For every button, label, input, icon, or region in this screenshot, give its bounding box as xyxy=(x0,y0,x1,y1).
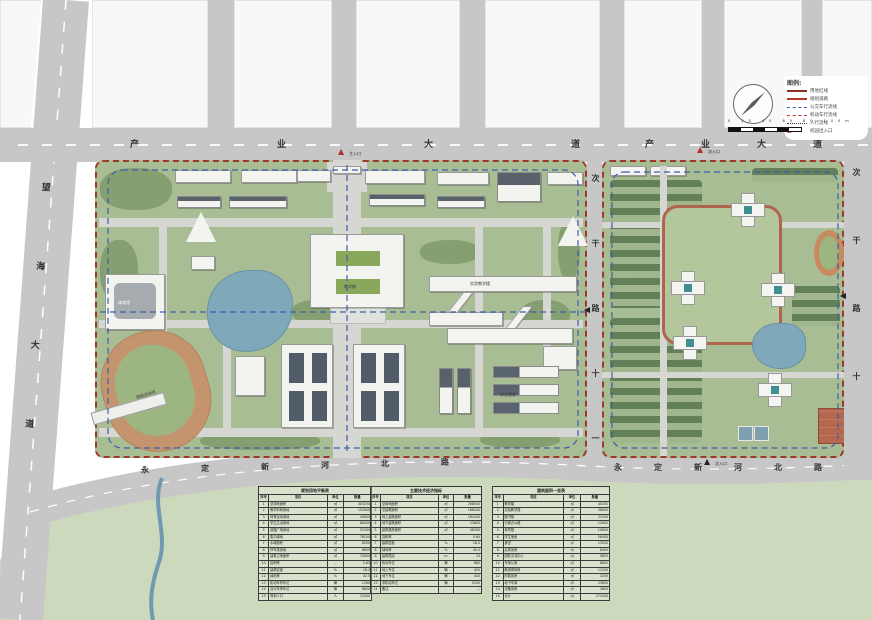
gate-building xyxy=(333,166,361,174)
building-label: 实验教学楼 xyxy=(470,281,490,287)
table-cell: 48300 xyxy=(454,527,482,534)
table-cell: 水域面积 xyxy=(269,541,328,548)
table-cell: 7 xyxy=(259,541,269,548)
table-cell: 15 xyxy=(259,593,269,600)
table-cell: ㎡ xyxy=(564,587,580,594)
table-cell: 学生生活用地 xyxy=(269,521,328,528)
table-cell: 专家公寓 xyxy=(503,560,564,567)
compass-icon xyxy=(733,84,773,124)
table-row: 8停车场用地㎡6800 xyxy=(259,547,372,554)
table-body: 1总用地面积㎡4032002教学科研用地㎡1526003体育运动用地㎡45800… xyxy=(259,501,372,600)
campus-road xyxy=(99,218,583,227)
master-plan-canvas: 产业大道 产业大道 望海大道 永定新河北路 永定新河北路 教学楼 xyxy=(0,0,872,620)
table-cell: 72600 xyxy=(343,554,371,561)
table-header-cell: 单位 xyxy=(564,495,580,502)
table-cell: 11200 xyxy=(580,567,609,574)
table-cell: 14 xyxy=(371,587,381,594)
building xyxy=(437,196,485,208)
table-cell: ㎡ xyxy=(327,521,343,528)
table-cell: 3600 xyxy=(580,587,609,594)
table-cell: - xyxy=(438,534,454,541)
tree-cluster xyxy=(420,240,480,264)
table-cell: 13200 xyxy=(580,541,609,548)
lab-building xyxy=(429,276,577,292)
table-cell: — xyxy=(454,587,482,594)
building xyxy=(610,166,646,176)
table-row: 10机动车位辆860 xyxy=(371,560,482,567)
table-row: 10专家公寓㎡8600 xyxy=(493,560,610,567)
table-row: 3体育运动用地㎡45800 xyxy=(259,514,372,521)
table-header-cell: 数量 xyxy=(343,495,371,502)
table-row: 5道路广场用地㎡52300 xyxy=(259,527,372,534)
table-cell: 7 xyxy=(493,541,504,548)
table-cell: ㎡ xyxy=(438,514,454,521)
building xyxy=(547,172,583,185)
table-title: 规划用地平衡表 xyxy=(258,486,372,494)
table-header-cell: 数量 xyxy=(454,495,482,502)
table-cell: 2 xyxy=(259,508,269,515)
table-cell: ㎡ xyxy=(564,541,580,548)
table-row: 2总建筑面积㎡186200 xyxy=(371,508,482,515)
table-cell: 268500 xyxy=(454,501,482,508)
table-cell: 学生宿舍 xyxy=(503,534,564,541)
table-cell: 13 xyxy=(493,580,504,587)
table-cell: 容积率 xyxy=(269,560,328,567)
table-cell: 8000 xyxy=(343,541,371,548)
table-row: 6容积率-0.60 xyxy=(371,534,482,541)
table-cell: 体育馆 xyxy=(503,527,564,534)
table-cell: ㎡ xyxy=(438,527,454,534)
cross-tower xyxy=(761,273,795,307)
tree-cluster xyxy=(100,168,172,210)
table-cell: 建筑基底面积 xyxy=(380,527,438,534)
table-cell: 14 xyxy=(493,587,504,594)
table-cell: 辆 xyxy=(438,567,454,574)
table-cell: 总建筑面积 xyxy=(380,508,438,515)
table-cell: 建筑限高 xyxy=(380,554,438,561)
table-cell: 10 xyxy=(371,560,381,567)
building-area-table: 建筑面积一览表 序号项目单位数量1教学楼㎡452002实验教学楼㎡386003图… xyxy=(492,486,610,601)
table-cell: 辆 xyxy=(438,574,454,581)
table-header-cell: 项目 xyxy=(269,495,328,502)
table-cell: ㎡ xyxy=(564,574,580,581)
table-row: 8绿地率%40.0 xyxy=(371,547,482,554)
table-row: 11地上车位辆420 xyxy=(371,567,482,574)
table-cell: 12000 xyxy=(343,593,371,600)
table-cell: 地下车位 xyxy=(380,574,438,581)
secondary-entrance-marker: ▲ xyxy=(697,146,703,154)
table-row: 11建筑密度%18.0 xyxy=(259,567,372,574)
table-cell: 1260 xyxy=(343,580,371,587)
table-cell: 12 xyxy=(259,574,269,581)
table-cell: 后勤用房 xyxy=(503,547,564,554)
table-cell: 建筑密度 xyxy=(269,567,328,574)
table-cell: 24 xyxy=(454,554,482,561)
legend-item: 机动车行流线 xyxy=(787,111,865,119)
table-title: 建筑面积一览表 xyxy=(492,486,610,494)
table-cell: 12 xyxy=(493,574,504,581)
table-cell: 9800 xyxy=(580,554,609,561)
table-cell: 5 xyxy=(371,527,381,534)
table-cell: ㎡ xyxy=(564,567,580,574)
table-cell: 5 xyxy=(259,527,269,534)
table-row: 9国际交流中心㎡9800 xyxy=(493,554,610,561)
table-cell: 地下建筑面积 xyxy=(380,521,438,528)
table-cell: ㎡ xyxy=(327,534,343,541)
table-cell: 行政办公楼 xyxy=(503,521,564,528)
table-cell: % xyxy=(438,547,454,554)
table-cell: 5 xyxy=(493,527,504,534)
table-row: 13非机动车位辆5200 xyxy=(371,580,482,587)
table-row: 12绿地率%42.5 xyxy=(259,574,372,581)
table-cell: 6800 xyxy=(343,547,371,554)
table-header-cell: 项目 xyxy=(380,495,438,502)
table-cell: 21500 xyxy=(580,514,609,521)
table-cell: 总用地面积 xyxy=(269,501,328,508)
table-cell: ㎡ xyxy=(327,514,343,521)
table-cell: 8 xyxy=(259,547,269,554)
lab-building xyxy=(429,312,503,326)
table-cell: 440 xyxy=(454,574,482,581)
building xyxy=(365,170,425,184)
table-cell: ㎡ xyxy=(564,547,580,554)
table-row: 7建筑密度%18.0 xyxy=(371,541,482,548)
table-row: 15合计㎡271000 xyxy=(493,593,610,600)
courtyard-garden xyxy=(336,251,380,266)
table-cell: ㎡ xyxy=(327,527,343,534)
table-cell: 规划人口 xyxy=(269,593,328,600)
table-cell: 403200 xyxy=(343,501,371,508)
legend-item: 公交车行流线 xyxy=(787,103,865,111)
table-cell: 420 xyxy=(454,567,482,574)
table-cell: ㎡ xyxy=(327,501,343,508)
bus-route-sample xyxy=(787,107,807,108)
table-cell: 14 xyxy=(259,587,269,594)
table-cell: 2 xyxy=(371,508,381,515)
building xyxy=(177,196,221,208)
table-cell: 11 xyxy=(371,567,381,574)
table-cell: ㎡ xyxy=(438,501,454,508)
table-cell: 9 xyxy=(493,554,504,561)
table-cell: 3 xyxy=(493,514,504,521)
table-cell: ㎡ xyxy=(327,554,343,561)
table-cell: 0.82 xyxy=(343,560,371,567)
table-row: 5体育馆㎡15800 xyxy=(493,527,610,534)
table-cell: 地上车位 xyxy=(380,567,438,574)
table-cell: 52300 xyxy=(343,527,371,534)
table-row: 9建筑限高m24 xyxy=(371,554,482,561)
table-row: 14自行车停车位辆8600 xyxy=(259,587,372,594)
cross-tower xyxy=(758,373,792,407)
table-row: 14设备用房㎡3600 xyxy=(493,587,610,594)
legend-title: 图例: xyxy=(787,78,865,87)
table-row: 1总用地面积㎡268500 xyxy=(371,501,482,508)
table-cell: 人 xyxy=(327,593,343,600)
table-row: 15规划人口人12000 xyxy=(259,593,372,600)
table-body: 1总用地面积㎡2685002总建筑面积㎡1862003地上建筑面积㎡162400… xyxy=(371,501,482,593)
table-cell: ㎡ xyxy=(327,508,343,515)
table-cell: 自行车停车位 xyxy=(269,587,328,594)
table-cell: 152600 xyxy=(343,508,371,515)
table-cell: 8 xyxy=(493,547,504,554)
building-label: 教学楼 xyxy=(344,284,356,290)
building xyxy=(650,166,686,176)
table-body: 1教学楼㎡452002实验教学楼㎡386003图书馆㎡215004行政办公楼㎡1… xyxy=(493,501,610,600)
table-cell: 42.5 xyxy=(343,574,371,581)
table-cell: 合计 xyxy=(503,593,564,600)
scale-bar xyxy=(728,127,802,132)
table-row: 10容积率-0.82 xyxy=(259,560,372,567)
building xyxy=(191,256,215,270)
table-cell: ㎡ xyxy=(564,514,580,521)
table-cell: 13 xyxy=(259,580,269,587)
table-cell: - xyxy=(327,560,343,567)
table-cell: 体育运动用地 xyxy=(269,514,328,521)
table-cell: 6 xyxy=(493,534,504,541)
basketball-court xyxy=(754,426,769,441)
tech-indicator-table: 主要技术经济指标 序号项目单位数量1总用地面积㎡2685002总建筑面积㎡186… xyxy=(370,486,482,594)
building xyxy=(175,170,231,183)
table-cell: 集中绿地 xyxy=(269,534,328,541)
table-cell: 45200 xyxy=(580,501,609,508)
table-cell: 机动车停车位 xyxy=(269,580,328,587)
table-row: 2实验教学楼㎡38600 xyxy=(493,508,610,515)
table-cell: 11 xyxy=(493,567,504,574)
table-header-cell: 数量 xyxy=(580,495,609,502)
table-cell: 设备用房 xyxy=(503,587,564,594)
table-cell: 地下车库 xyxy=(503,580,564,587)
table-row: 13地下车库㎡23800 xyxy=(493,580,610,587)
road-label-yongding-right: 永定新河北路 xyxy=(614,462,854,473)
row-buildings xyxy=(752,168,838,182)
table-row: 3地上建筑面积㎡162400 xyxy=(371,514,482,521)
dormitory xyxy=(439,368,453,414)
table-cell: 辆 xyxy=(327,587,343,594)
table-cell: 8 xyxy=(371,547,381,554)
redline-sample xyxy=(787,90,807,92)
table-cell: ㎡ xyxy=(438,508,454,515)
lab-building xyxy=(447,328,573,344)
courtyard-building xyxy=(353,344,405,428)
table-cell: 45800 xyxy=(343,514,371,521)
legend-item: 用地红线 xyxy=(787,87,865,95)
entrance-arrow: ▲ xyxy=(583,307,591,313)
table-cell: 总用地面积 xyxy=(380,501,438,508)
table-cell: 1 xyxy=(259,501,269,508)
table-row: 4地下建筑面积㎡23800 xyxy=(371,521,482,528)
table-cell: 绿地率 xyxy=(269,574,328,581)
table-cell: 162400 xyxy=(454,514,482,521)
table-cell: 教师周转房 xyxy=(503,567,564,574)
table-row: 6学生宿舍㎡56400 xyxy=(493,534,610,541)
table-cell: 6 xyxy=(259,534,269,541)
dormitory xyxy=(493,366,559,378)
gymnasium xyxy=(105,274,165,330)
table-cell: 18.0 xyxy=(454,541,482,548)
table-cell: 建筑密度 xyxy=(380,541,438,548)
table-cell: 3 xyxy=(259,514,269,521)
table-cell: 地上建筑面积 xyxy=(380,514,438,521)
table-cell: 辆 xyxy=(438,560,454,567)
road-label-secondary-mid: 次干路十一 xyxy=(590,174,601,499)
cross-tower xyxy=(731,193,765,227)
table-header-cell: 项目 xyxy=(503,495,564,502)
table-cell: 备注 xyxy=(380,587,438,594)
table-cell: 40.0 xyxy=(454,547,482,554)
entrance-label: 次入口 xyxy=(708,149,720,155)
table-header-cell: 序号 xyxy=(493,495,504,502)
table-cell: 3 xyxy=(371,514,381,521)
table-row: 2教学科研用地㎡152600 xyxy=(259,508,372,515)
table-cell: 6 xyxy=(371,534,381,541)
table-row: 6集中绿地㎡76100 xyxy=(259,534,372,541)
table-cell: 5200 xyxy=(454,580,482,587)
cross-tower xyxy=(671,271,705,305)
table-row: 8后勤用房㎡6400 xyxy=(493,547,610,554)
table-cell: 4 xyxy=(493,521,504,528)
land-balance-table: 规划用地平衡表 序号项目单位数量1总用地面积㎡4032002教学科研用地㎡152… xyxy=(258,486,372,601)
building-label: 学生宿舍 xyxy=(500,392,516,398)
secondary-entrance-marker: ▲ xyxy=(704,458,710,466)
table-cell: 7 xyxy=(371,541,381,548)
table-cell: ㎡ xyxy=(564,508,580,515)
main-entrance-marker: ▲ xyxy=(338,148,344,156)
building xyxy=(229,196,287,208)
table-row: 7水域面积㎡8000 xyxy=(259,541,372,548)
building xyxy=(369,194,425,206)
table-cell: 8600 xyxy=(343,587,371,594)
table-cell: 道路广场用地 xyxy=(269,527,328,534)
building xyxy=(297,170,331,182)
table-row: 5建筑基底面积㎡48300 xyxy=(371,527,482,534)
building-label: 体育馆 xyxy=(118,300,130,306)
table-cell: ㎡ xyxy=(438,521,454,528)
table-row: 1总用地面积㎡403200 xyxy=(259,501,372,508)
table-cell: ㎡ xyxy=(564,554,580,561)
grand-steps xyxy=(330,308,386,324)
table-cell: 8600 xyxy=(580,560,609,567)
courtyard-garden xyxy=(336,279,380,294)
campus-road xyxy=(602,372,844,378)
table-row: 9建筑占地面积㎡72600 xyxy=(259,554,372,561)
table-cell: 1 xyxy=(371,501,381,508)
row-buildings xyxy=(792,286,840,326)
table-cell: 13 xyxy=(371,580,381,587)
table-cell: 4 xyxy=(259,521,269,528)
table-cell: m xyxy=(438,554,454,561)
table-row: 1教学楼㎡45200 xyxy=(493,501,610,508)
table-header-cell: 序号 xyxy=(371,495,381,502)
building xyxy=(437,172,489,185)
east-lake xyxy=(752,323,806,369)
table-cell: 12600 xyxy=(580,521,609,528)
road-label-secondary-east: 次干路十 xyxy=(851,168,862,440)
small-running-track xyxy=(814,230,844,276)
table-cell: 56400 xyxy=(580,534,609,541)
table-cell: 1 xyxy=(493,501,504,508)
table-cell: 4 xyxy=(371,521,381,528)
table-cell: 食堂 xyxy=(503,541,564,548)
table-cell: 绿地率 xyxy=(380,547,438,554)
table-cell: 9 xyxy=(259,554,269,561)
table-cell: 机动车位 xyxy=(380,560,438,567)
table-row: 4行政办公楼㎡12600 xyxy=(493,521,610,528)
table-cell: 10 xyxy=(259,560,269,567)
table-row: 4学生生活用地㎡68400 xyxy=(259,521,372,528)
table-header-cell: 单位 xyxy=(438,495,454,502)
table-cell: 38600 xyxy=(580,508,609,515)
table-cell: ㎡ xyxy=(564,593,580,600)
table-cell: 教学楼 xyxy=(503,501,564,508)
vehicle-route-sample xyxy=(787,115,807,116)
table-row: 11教师周转房㎡11200 xyxy=(493,567,610,574)
table-title: 主要技术经济指标 xyxy=(370,486,482,494)
table-row: 12附属用房㎡4200 xyxy=(493,574,610,581)
table-cell: 6400 xyxy=(580,547,609,554)
table-cell: ㎡ xyxy=(564,560,580,567)
table-row: 13机动车停车位辆1260 xyxy=(259,580,372,587)
courtyard-building xyxy=(281,344,333,428)
table-cell: 23800 xyxy=(580,580,609,587)
table-cell: 10 xyxy=(493,560,504,567)
table-cell: 2 xyxy=(493,508,504,515)
table-cell: ㎡ xyxy=(564,501,580,508)
entrance-label: 主入口 xyxy=(349,151,361,157)
table-cell: 15800 xyxy=(580,527,609,534)
building xyxy=(497,172,541,202)
road-sample xyxy=(787,98,807,100)
table-cell: 12 xyxy=(371,574,381,581)
table-row: 7食堂㎡13200 xyxy=(493,541,610,548)
table-cell: 辆 xyxy=(327,580,343,587)
table-cell: 实验教学楼 xyxy=(503,508,564,515)
dormitory xyxy=(457,368,471,414)
table-cell: 国际交流中心 xyxy=(503,554,564,561)
table-cell: 68400 xyxy=(343,521,371,528)
table-cell: - xyxy=(438,587,454,594)
table-cell: 4200 xyxy=(580,574,609,581)
table-row: 14备注-— xyxy=(371,587,482,594)
table-header-cell: 序号 xyxy=(259,495,269,502)
table-cell: 非机动车位 xyxy=(380,580,438,587)
table-cell: ㎡ xyxy=(564,580,580,587)
table-cell: % xyxy=(438,541,454,548)
table-header-cell: 单位 xyxy=(327,495,343,502)
table-cell: 15 xyxy=(493,593,504,600)
entrance-label: 次入口 xyxy=(715,461,727,467)
table-cell: % xyxy=(327,574,343,581)
table-cell: 0.60 xyxy=(454,534,482,541)
table-cell: ㎡ xyxy=(564,521,580,528)
table-cell: 11 xyxy=(259,567,269,574)
building xyxy=(235,356,265,396)
table-cell: 18.0 xyxy=(343,567,371,574)
basketball-court xyxy=(738,426,753,441)
legend-item: 规划道路 xyxy=(787,95,865,103)
table-row: 12地下车位辆440 xyxy=(371,574,482,581)
table-cell: 186200 xyxy=(454,508,482,515)
dormitory xyxy=(493,402,559,414)
road-label-industry-left: 产业大道 xyxy=(130,137,718,150)
table-cell: ㎡ xyxy=(564,527,580,534)
table-cell: ㎡ xyxy=(327,541,343,548)
building xyxy=(241,170,297,183)
table-cell: 停车场用地 xyxy=(269,547,328,554)
table-cell: 容积率 xyxy=(380,534,438,541)
table-cell: % xyxy=(327,567,343,574)
entrance-arrow: ▲ xyxy=(839,293,847,299)
table-cell: 9 xyxy=(371,554,381,561)
